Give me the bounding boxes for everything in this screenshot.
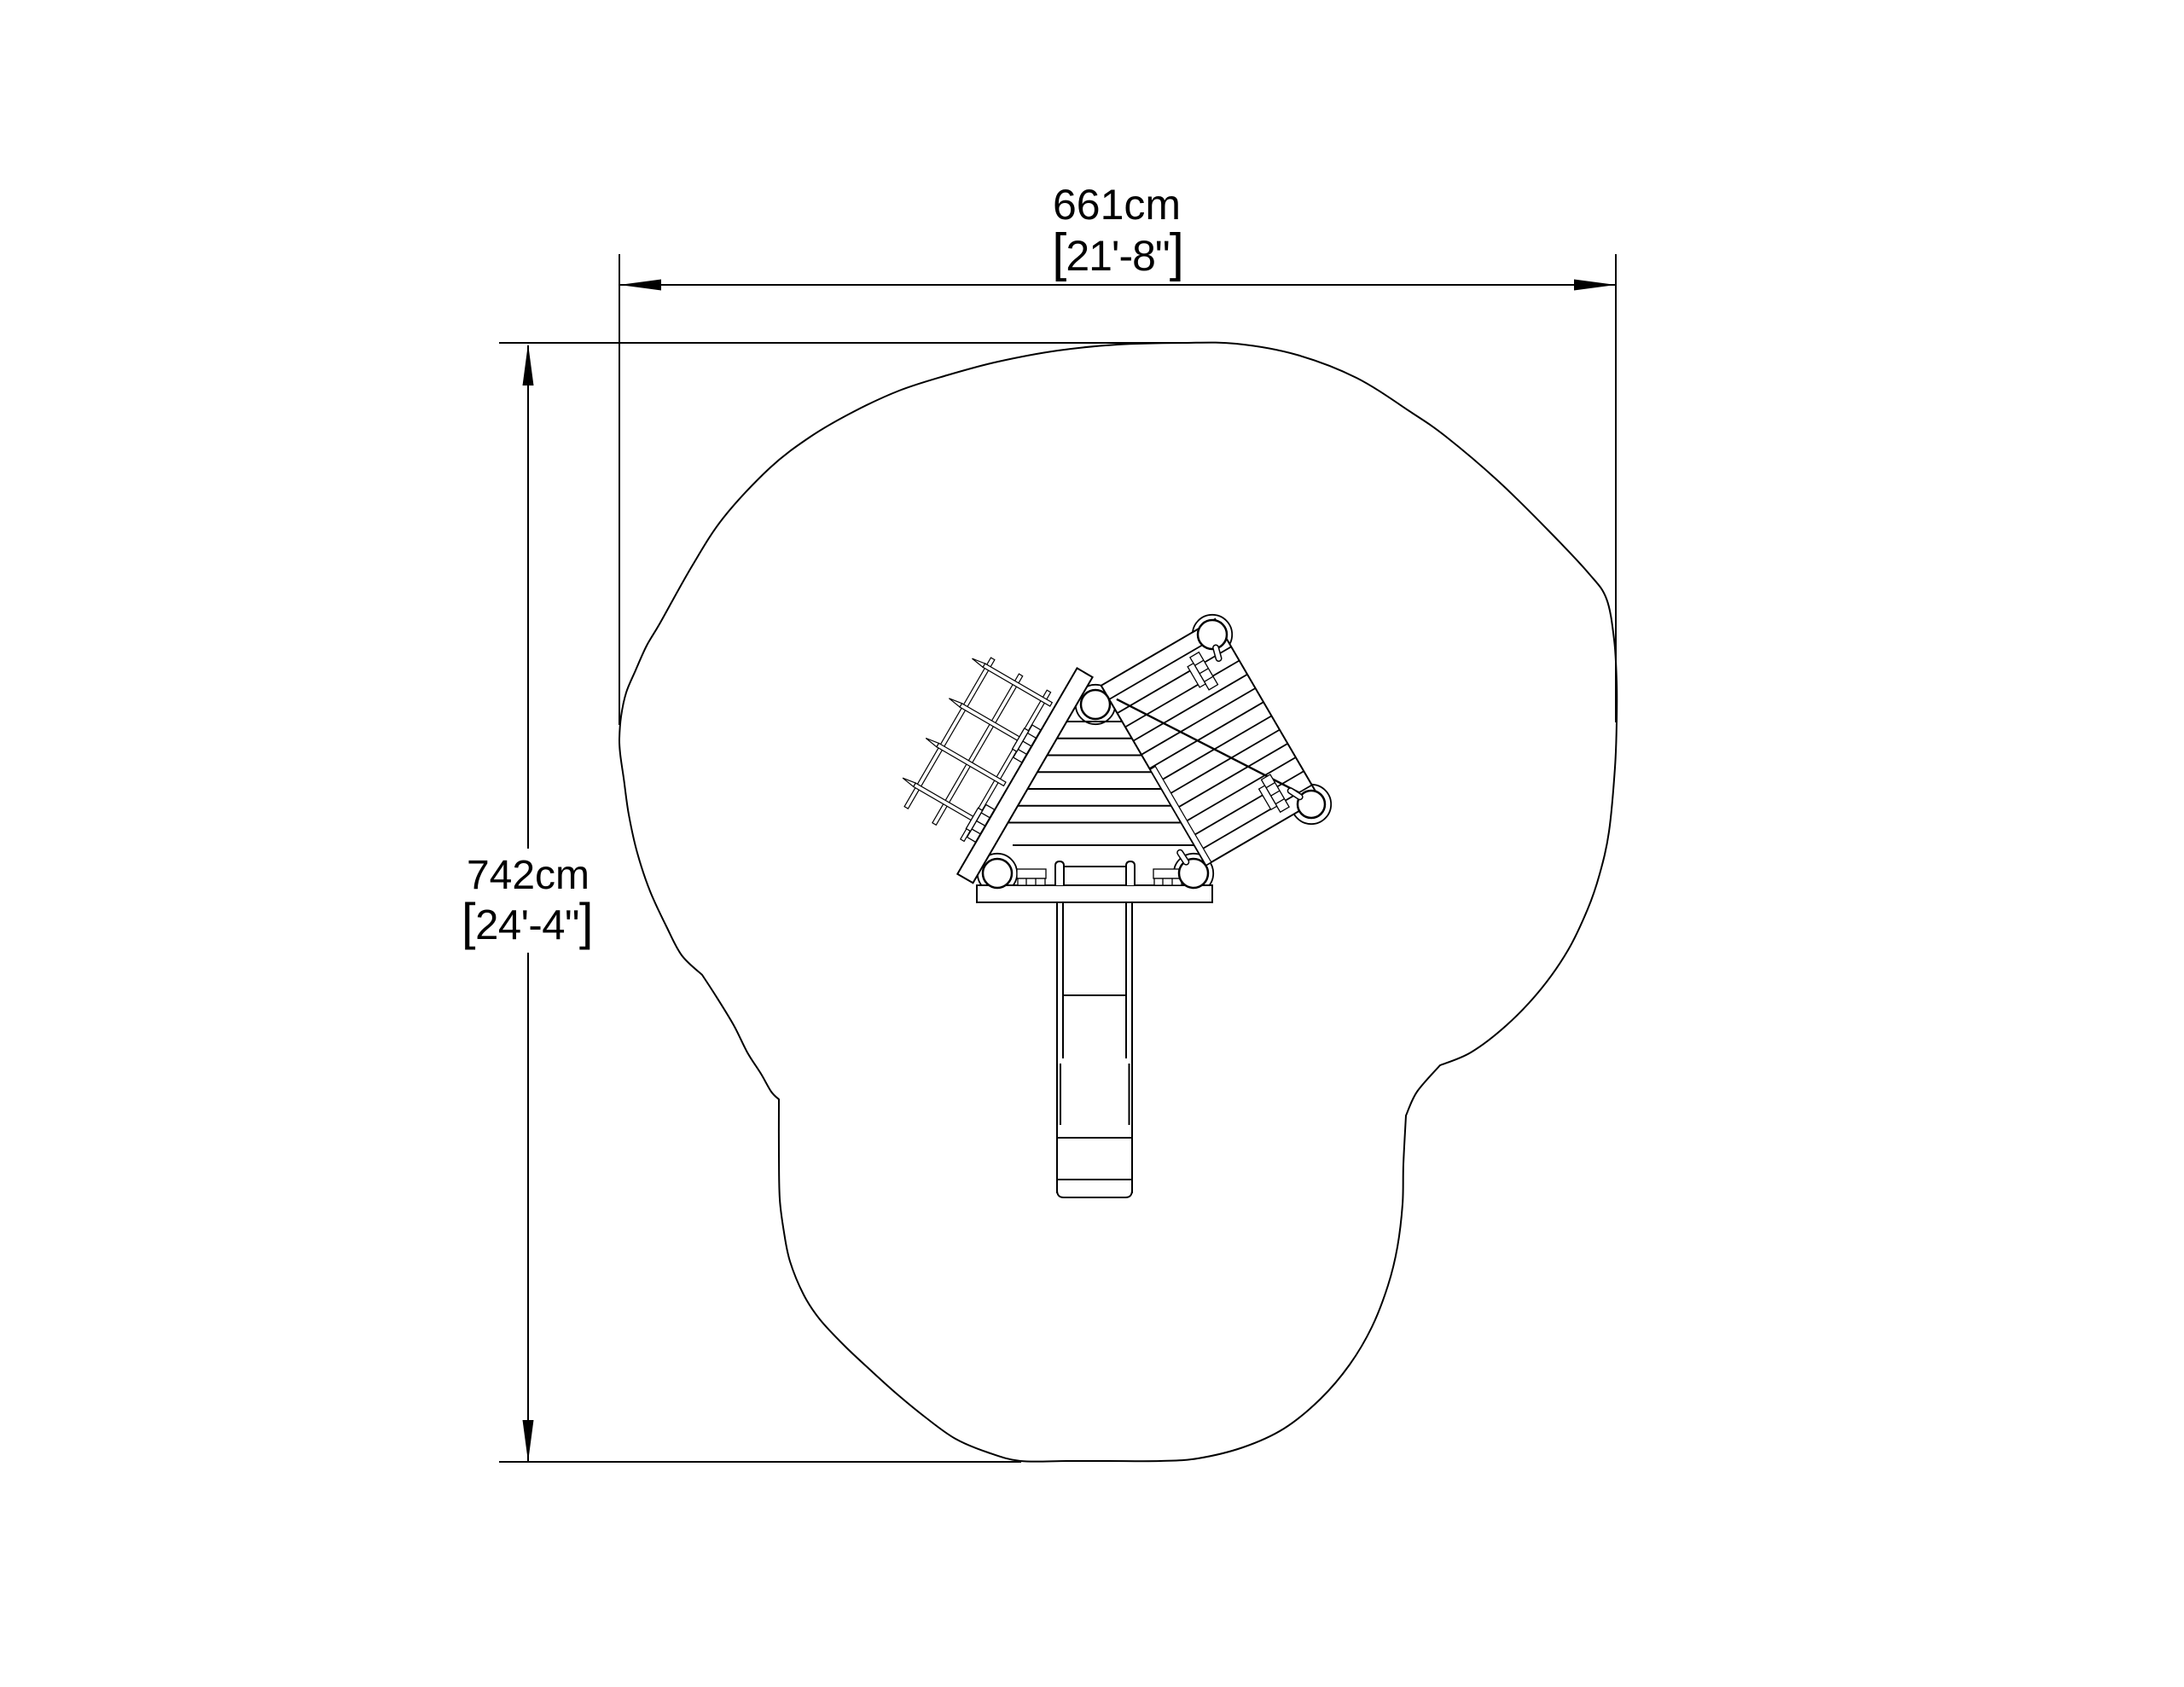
svg-text:661cm: 661cm: [1053, 181, 1181, 229]
svg-text:[24'-4"]: [24'-4"]: [462, 893, 593, 950]
svg-text:[21'-8"]: [21'-8"]: [1052, 223, 1183, 282]
svg-text:742cm: 742cm: [467, 853, 590, 898]
